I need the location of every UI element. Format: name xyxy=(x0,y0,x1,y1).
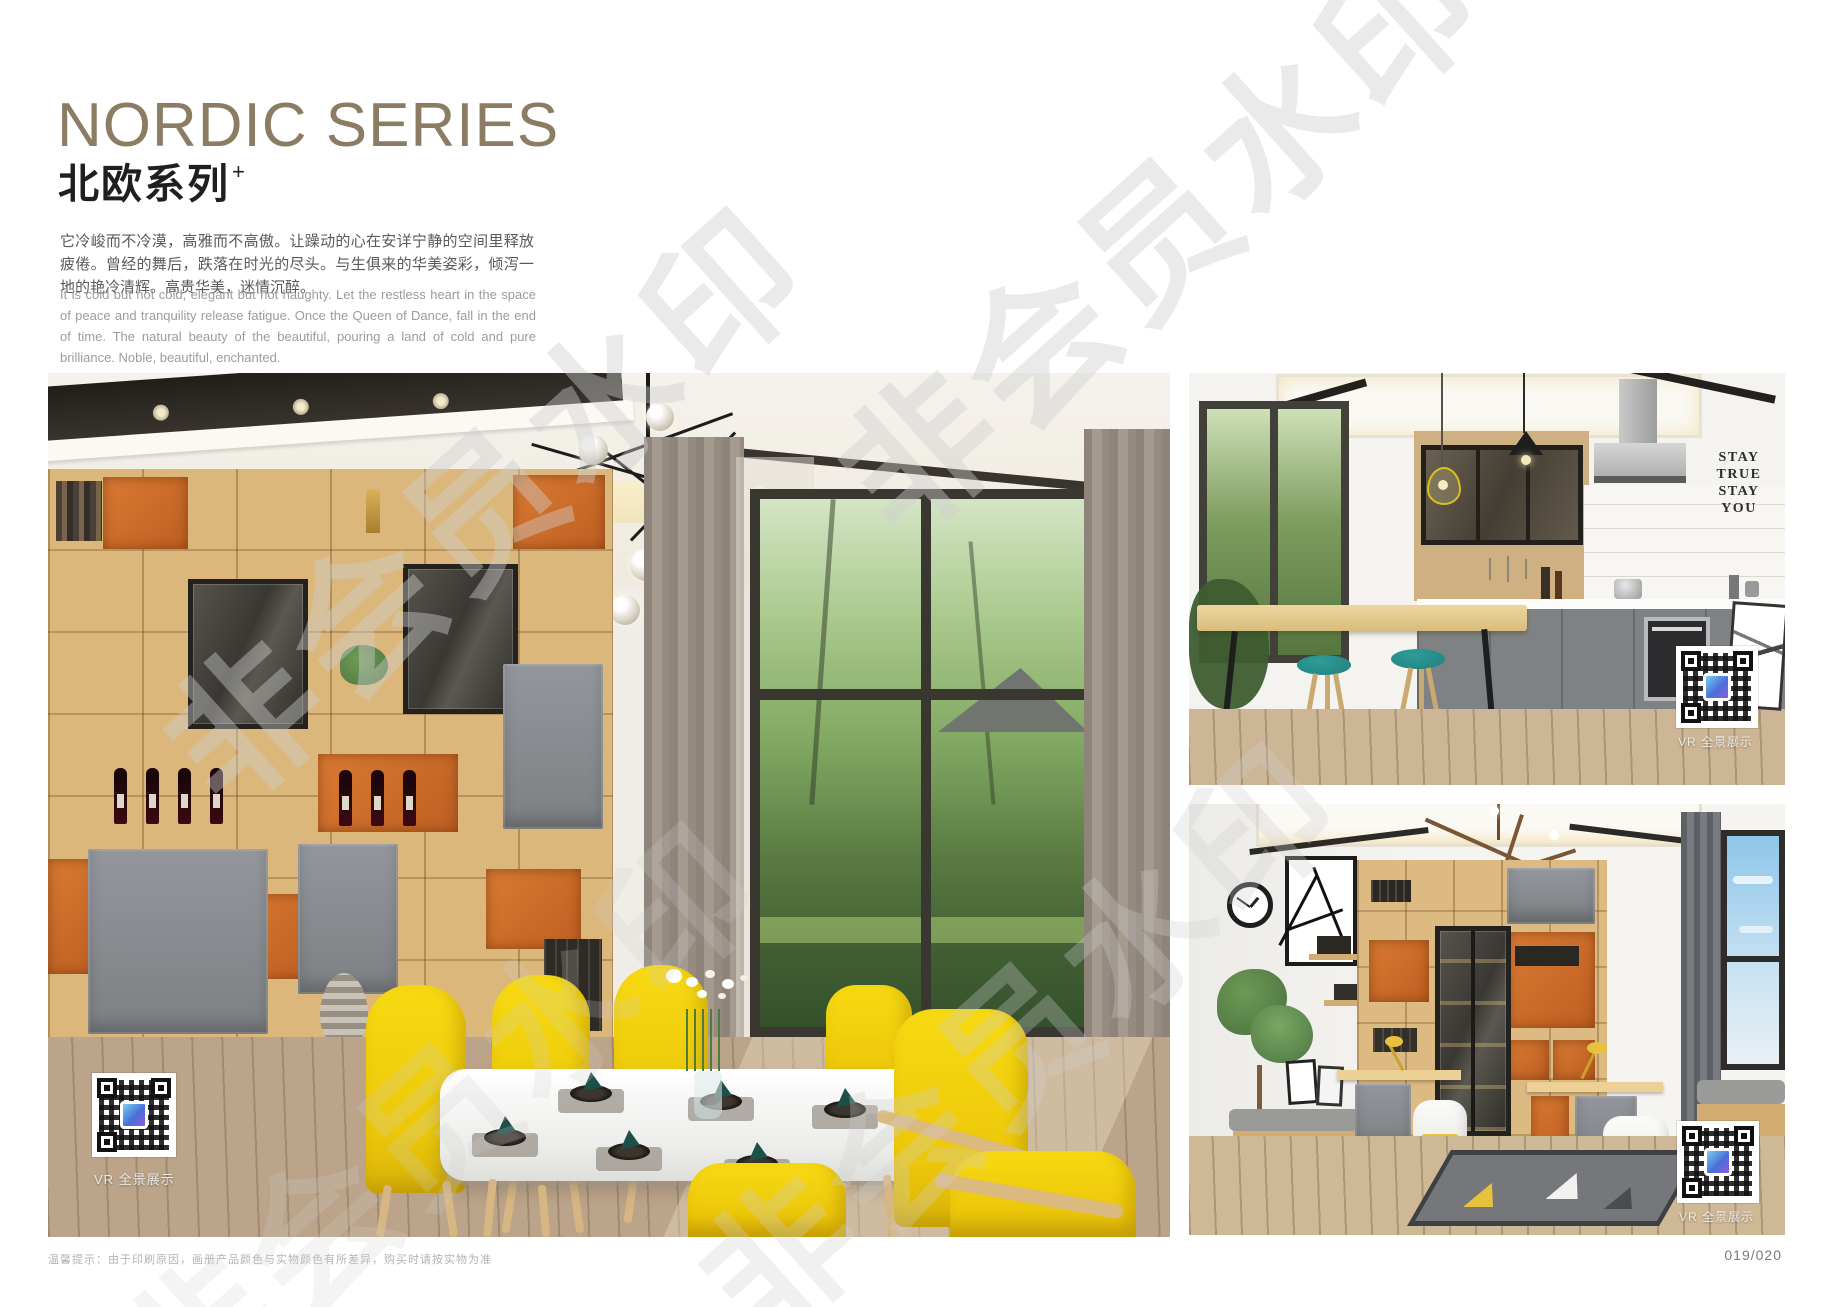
cabinet-mullion xyxy=(1471,931,1475,1131)
place-setting xyxy=(558,1077,624,1117)
rug-triangle xyxy=(1546,1173,1593,1199)
catalog-page: 非会员水印 非会员水印 非会员水印 非会员水印 NORDIC SERIES 北欧… xyxy=(0,0,1836,1307)
window-mullion xyxy=(921,499,931,1027)
qr-finder-icon xyxy=(1734,1126,1754,1146)
qr-finder-icon xyxy=(151,1078,171,1098)
place-setting xyxy=(472,1121,538,1161)
books xyxy=(1317,936,1351,954)
qr-finder-icon xyxy=(1682,1126,1702,1146)
vr-qr-code xyxy=(1676,646,1758,728)
cooking-pot xyxy=(1614,579,1642,599)
teal-bar-stool xyxy=(1297,655,1351,675)
wine-bottle xyxy=(114,768,127,824)
gray-cabinet-door xyxy=(88,849,268,1034)
intro-paragraph-en: It is cold but not cold, elegant but not… xyxy=(60,284,536,368)
range-hood xyxy=(1594,443,1686,483)
orange-shelf-cell xyxy=(1507,1040,1549,1080)
orange-shelf-cell xyxy=(1369,940,1429,1002)
rug-triangle xyxy=(1463,1183,1507,1207)
range-hood-chimney xyxy=(1619,379,1657,445)
qr-center-logo xyxy=(120,1101,148,1129)
kitchen-photo: STAY TRUE STAY YOU VR 全景展示 xyxy=(1189,373,1785,785)
potted-plant xyxy=(340,645,388,685)
subtitle-text: 北欧系列 xyxy=(58,161,230,207)
vr-qr-code xyxy=(1677,1121,1759,1203)
oven-handle xyxy=(1652,627,1702,631)
dining-chair xyxy=(688,1163,846,1237)
gray-cabinet-door xyxy=(503,664,603,829)
flower-stems xyxy=(686,1009,720,1071)
white-flower-cluster xyxy=(666,969,682,983)
qr-finder-icon xyxy=(1682,1178,1702,1198)
vr-panorama-label: VR 全景展示 xyxy=(1678,733,1753,750)
wall-art-line: STAY xyxy=(1709,449,1769,466)
pendant-cord xyxy=(1523,373,1525,433)
qr-finder-icon xyxy=(1681,651,1701,671)
qr-center-logo xyxy=(1704,1148,1732,1176)
sky-window xyxy=(1721,830,1785,1070)
geometric-rug xyxy=(1407,1150,1703,1226)
bulb xyxy=(1489,806,1499,816)
qr-finder-icon xyxy=(1681,703,1701,723)
tree-trunk xyxy=(809,499,835,805)
window-transom xyxy=(1727,956,1779,962)
recessed-light xyxy=(152,404,169,421)
qr-finder-icon xyxy=(97,1132,117,1152)
art-line xyxy=(1278,874,1318,946)
cloud xyxy=(1733,876,1773,884)
desk-top xyxy=(1527,1082,1663,1092)
yellow-desk-lamp xyxy=(1587,1042,1607,1054)
books xyxy=(56,481,102,541)
orange-shelf-cell xyxy=(103,477,188,549)
wine-bottle xyxy=(403,770,416,826)
trophy-decor xyxy=(366,489,380,533)
cloud xyxy=(1739,926,1773,933)
recessed-light xyxy=(432,393,449,410)
vr-panorama-label: VR 全景展示 xyxy=(1679,1208,1754,1225)
teal-bar-stool xyxy=(1391,649,1445,669)
page-subtitle-cn: 北欧系列+ xyxy=(58,150,245,210)
study-room-photo: VR 全景展示 xyxy=(1189,804,1785,1235)
garden-window xyxy=(750,489,1102,1037)
bottle xyxy=(1555,571,1562,599)
clock-hand xyxy=(1249,897,1259,908)
window-seat-cushion xyxy=(1697,1080,1785,1104)
place-setting xyxy=(812,1093,878,1133)
books xyxy=(1515,946,1579,966)
place-setting xyxy=(596,1135,662,1175)
wine-bottle xyxy=(146,768,159,824)
desk-top xyxy=(1337,1070,1461,1080)
wine-bottle xyxy=(178,768,191,824)
dining-room-photo: VR 全景展示 xyxy=(48,373,1170,1237)
page-number: 019/020 xyxy=(1724,1247,1782,1263)
wall-art-line: TRUE xyxy=(1709,466,1769,483)
qr-center-logo xyxy=(1703,673,1731,701)
orange-shelf-cell xyxy=(486,869,581,949)
clock-hand xyxy=(1236,897,1250,908)
bulb xyxy=(1549,830,1559,840)
footer-disclaimer: 温馨提示：由于印刷原因，画册产品颜色与实物颜色有所差异，购买时请按实物为准 xyxy=(48,1251,492,1267)
hanging-utensil xyxy=(1489,558,1491,580)
wall-clock xyxy=(1227,882,1273,928)
wine-bottle-shelf xyxy=(106,757,266,829)
orange-shelf-cell xyxy=(513,475,605,549)
qr-finder-icon xyxy=(1733,651,1753,671)
wine-bottle xyxy=(371,770,384,826)
shelving-unit xyxy=(48,469,613,1043)
books xyxy=(1371,880,1411,902)
vr-qr-code xyxy=(92,1073,176,1157)
gray-cabinet-door xyxy=(1507,868,1595,924)
countertop-item xyxy=(1745,581,1759,597)
qr-finder-icon xyxy=(97,1078,117,1098)
wall-art-line: YOU xyxy=(1709,500,1769,517)
glass-vase xyxy=(694,1071,722,1119)
bench-cushion xyxy=(1229,1109,1359,1131)
hanging-utensil xyxy=(1507,556,1509,582)
yellow-desk-lamp xyxy=(1385,1036,1403,1047)
globe-bulb xyxy=(578,435,608,465)
recessed-light xyxy=(292,398,309,415)
wine-bottle-shelf xyxy=(333,761,453,831)
subtitle-superscript: + xyxy=(232,159,247,184)
bulb xyxy=(1521,455,1531,465)
bottle xyxy=(1729,575,1739,599)
globe-bulb xyxy=(610,595,640,625)
cabinet-mullion xyxy=(1476,450,1480,540)
glass-display-cabinet xyxy=(403,564,518,714)
glass-display-cabinet xyxy=(188,579,308,729)
wall-art-text: STAY TRUE STAY YOU xyxy=(1709,449,1769,517)
tree-trunk xyxy=(969,542,996,805)
rug-triangle xyxy=(1604,1187,1645,1209)
vr-panorama-label: VR 全景展示 xyxy=(94,1169,175,1188)
wall-art-line: STAY xyxy=(1709,483,1769,500)
bar-table-top xyxy=(1197,605,1527,631)
wine-bottle xyxy=(339,770,352,826)
wine-bottle xyxy=(210,768,223,824)
bottle xyxy=(1541,567,1550,599)
globe-bulb xyxy=(646,403,674,431)
gray-cabinet-door xyxy=(298,844,398,994)
window-transom xyxy=(760,689,1092,700)
pendant-cord xyxy=(1441,373,1443,469)
bulb xyxy=(1438,480,1448,490)
plant-foliage xyxy=(1251,1005,1313,1063)
yellow-cage-pendant xyxy=(1427,467,1461,505)
leaning-frame xyxy=(1286,1059,1319,1105)
hanging-utensil xyxy=(1525,559,1527,579)
